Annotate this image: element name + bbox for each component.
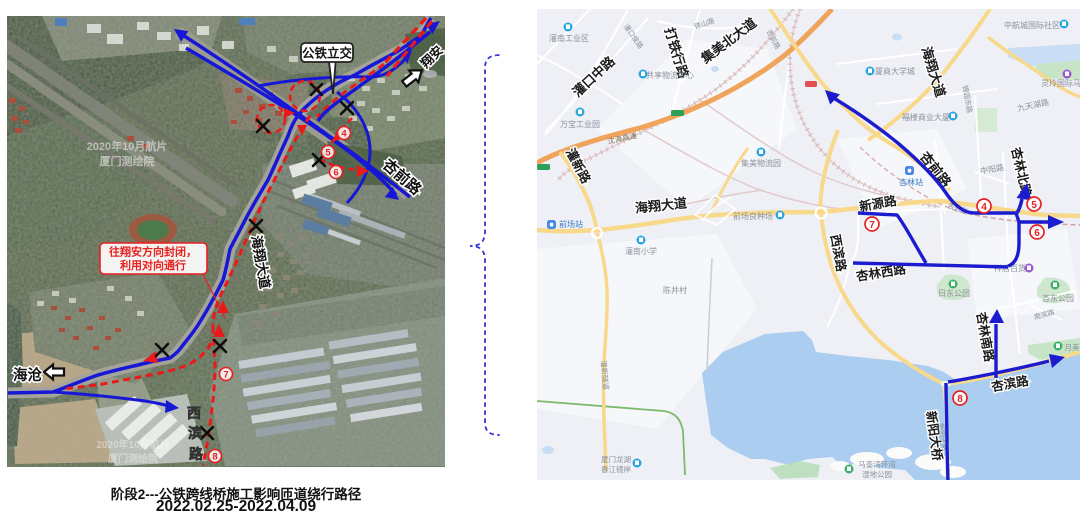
svg-text:日东公园: 日东公园 xyxy=(938,288,970,298)
svg-text:海沧: 海沧 xyxy=(13,366,42,384)
svg-text:厦门测绘院: 厦门测绘院 xyxy=(100,154,155,168)
svg-text:杏东公园: 杏东公园 xyxy=(1042,293,1074,303)
svg-text:5: 5 xyxy=(1031,200,1037,211)
svg-text:7: 7 xyxy=(223,370,228,381)
svg-text:6: 6 xyxy=(1034,228,1040,239)
svg-text:利用对向通行: 利用对向通行 xyxy=(120,258,186,272)
svg-text:陈井村: 陈井村 xyxy=(663,285,687,295)
svg-text:8: 8 xyxy=(957,394,963,405)
svg-text:月美: 月美 xyxy=(1065,342,1080,352)
svg-text:西: 西 xyxy=(187,405,201,421)
svg-text:2020年10月航片: 2020年10月航片 xyxy=(87,139,168,153)
svg-text:前场良种场: 前场良种场 xyxy=(733,211,773,221)
svg-text:5: 5 xyxy=(325,148,331,159)
svg-text:7: 7 xyxy=(869,220,875,231)
svg-text:8: 8 xyxy=(212,452,217,463)
svg-text:厦门龙湖: 厦门龙湖 xyxy=(601,454,631,464)
svg-text:6: 6 xyxy=(333,168,338,179)
svg-text:厦门测绘院: 厦门测绘院 xyxy=(108,452,158,465)
svg-text:春江镜岸: 春江镜岸 xyxy=(601,464,631,474)
svg-text:杏林站: 杏林站 xyxy=(899,177,923,187)
svg-text:4: 4 xyxy=(981,202,987,213)
svg-text:灵玲国际马: 灵玲国际马 xyxy=(1041,78,1080,88)
svg-text:前场站: 前场站 xyxy=(559,219,583,229)
svg-text:福楼商业大厦: 福楼商业大厦 xyxy=(902,112,950,122)
svg-text:马銮湾环湾: 马銮湾环湾 xyxy=(858,459,896,469)
svg-text:路: 路 xyxy=(189,446,204,462)
svg-text:灌南工业区: 灌南工业区 xyxy=(549,33,589,43)
svg-text:万宝工业园: 万宝工业园 xyxy=(560,119,600,129)
svg-text:湿地公园: 湿地公园 xyxy=(862,469,892,479)
svg-text:4: 4 xyxy=(341,129,347,140)
svg-text:中航城国际社区: 中航城国际社区 xyxy=(1004,20,1060,30)
svg-text:集美物流园: 集美物流园 xyxy=(741,158,781,168)
svg-text:公铁立交: 公铁立交 xyxy=(302,46,353,61)
svg-text:灌南小学: 灌南小学 xyxy=(625,246,657,256)
svg-text:2020年10月航片: 2020年10月航片 xyxy=(96,438,169,451)
svg-text:往翔安方向封闭，: 往翔安方向封闭， xyxy=(109,245,197,259)
svg-text:厦商大学城: 厦商大学城 xyxy=(875,66,915,76)
svg-text:共享物流中心: 共享物流中心 xyxy=(646,70,694,80)
svg-text:滨: 滨 xyxy=(188,425,202,441)
